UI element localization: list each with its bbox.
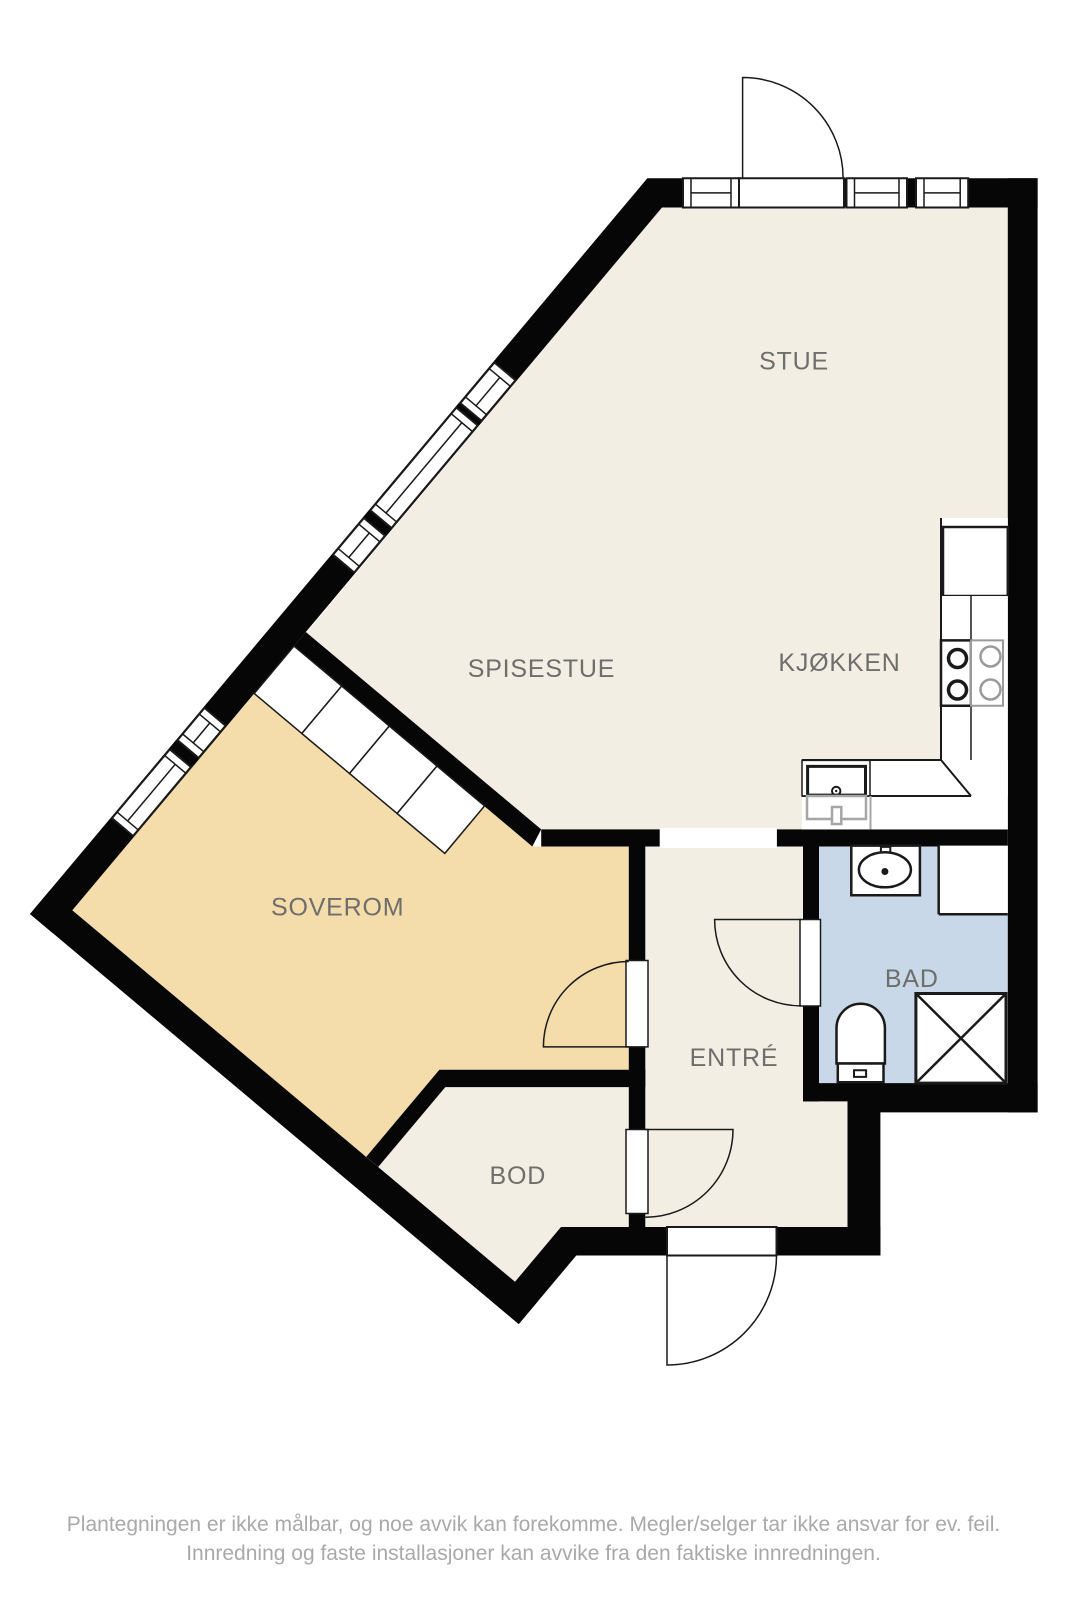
svg-text:STUE: STUE bbox=[759, 348, 829, 376]
svg-text:BOD: BOD bbox=[490, 1162, 547, 1190]
svg-text:Innredning og faste installasj: Innredning og faste installasjoner kan a… bbox=[186, 1542, 881, 1565]
svg-text:Plantegningen er ikke målbar,: Plantegningen er ikke målbar, og noe avv… bbox=[67, 1513, 1000, 1536]
svg-text:BAD: BAD bbox=[885, 965, 939, 993]
svg-text:ENTRÉ: ENTRÉ bbox=[690, 1043, 779, 1072]
svg-text:SPISESTUE: SPISESTUE bbox=[468, 655, 616, 683]
svg-text:SOVEROM: SOVEROM bbox=[271, 894, 404, 922]
svg-text:KJØKKEN: KJØKKEN bbox=[778, 649, 900, 677]
